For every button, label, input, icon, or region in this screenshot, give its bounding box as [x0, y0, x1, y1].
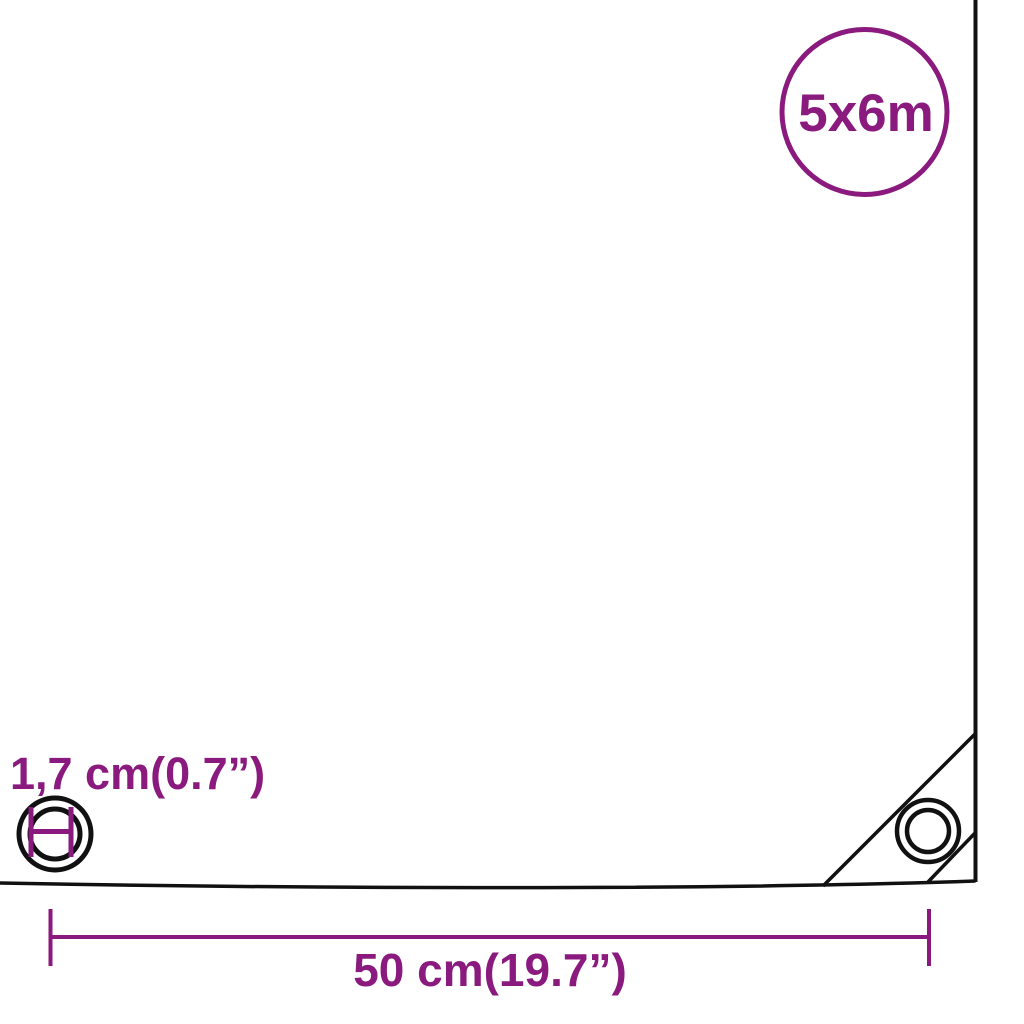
eyelet-detail: 1,7 cm(0.7”) [10, 748, 265, 870]
eyelet-diameter-label: 1,7 cm(0.7”) [10, 748, 265, 799]
size-badge-label: 5x6m [798, 84, 934, 143]
eyelet-detail-icon [19, 798, 91, 870]
corner-eyelet-icon [897, 800, 959, 862]
dimension-label: 50 cm(19.7”) [353, 944, 627, 996]
corner-fold-inner-line [928, 832, 976, 882]
corner-distance-dimension: 50 cm(19.7”) [51, 909, 930, 996]
size-badge: 5x6m [782, 30, 947, 195]
tarp-diagram-svg: 5x6m 1,7 cm(0.7”) 50 cm(19.7”) [0, 0, 1024, 1024]
corner-eyelet-inner-ring [907, 810, 949, 852]
corner-fold [823, 733, 976, 886]
product-diagram-canvas: 5x6m 1,7 cm(0.7”) 50 cm(19.7”) [0, 0, 1024, 1024]
